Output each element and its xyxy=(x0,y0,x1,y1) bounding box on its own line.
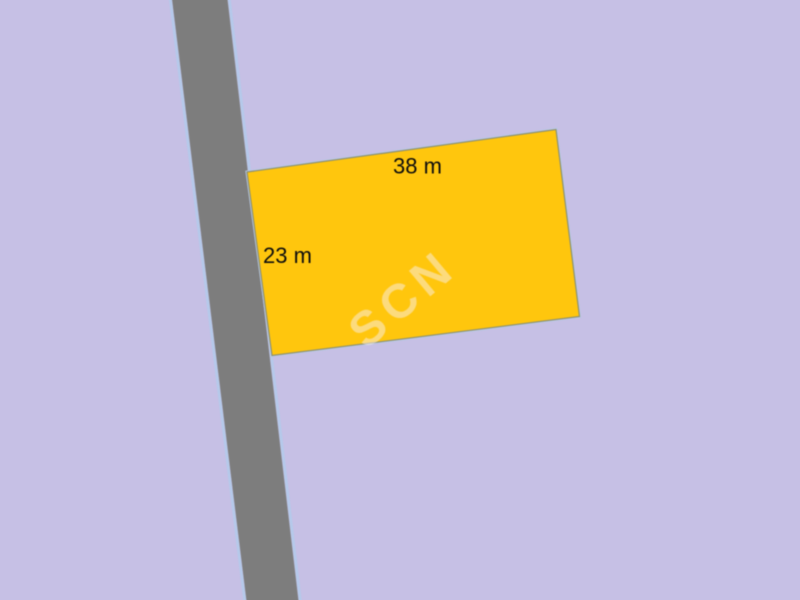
svg-text:38 m: 38 m xyxy=(393,154,442,179)
svg-text:23 m: 23 m xyxy=(263,243,312,268)
